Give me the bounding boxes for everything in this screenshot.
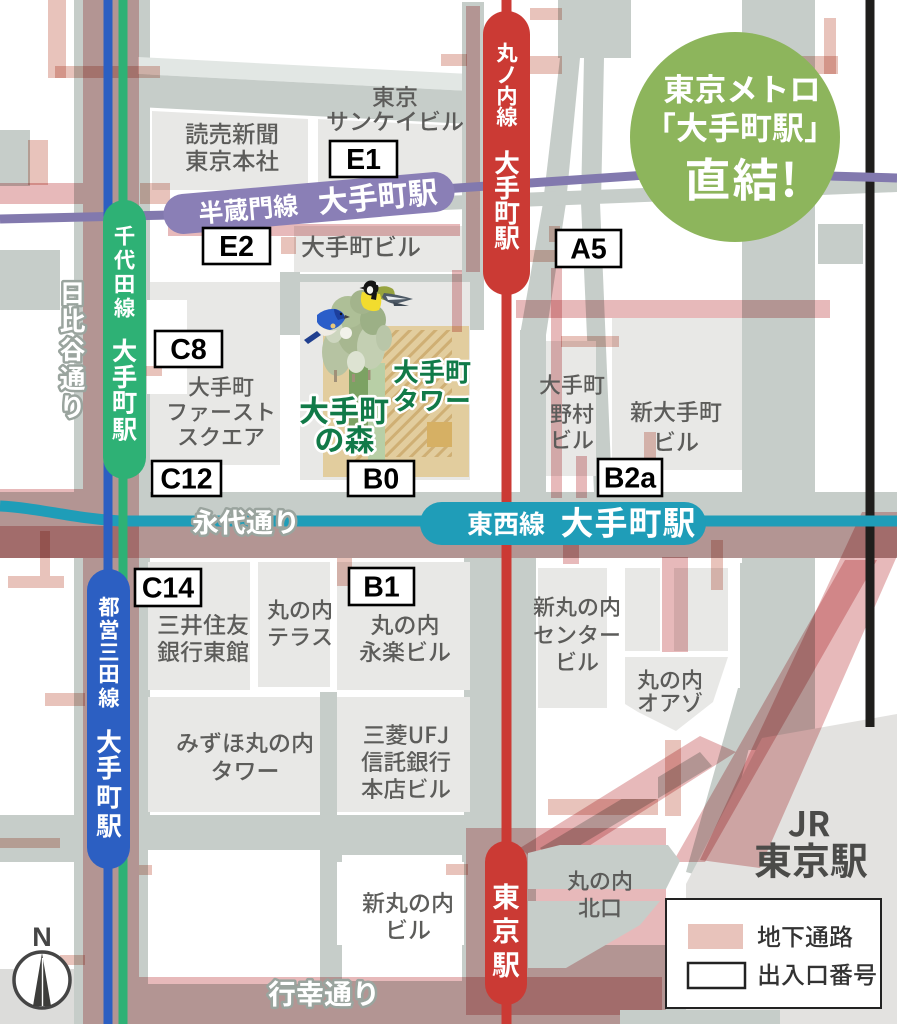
- svg-text:N: N: [32, 922, 52, 952]
- svg-text:E1: E1: [346, 144, 381, 176]
- svg-text:C8: C8: [170, 334, 206, 366]
- svg-text:E2: E2: [219, 231, 254, 263]
- svg-text:B2a: B2a: [604, 463, 657, 495]
- svg-text:C12: C12: [160, 464, 212, 496]
- svg-text:C14: C14: [142, 573, 194, 605]
- svg-text:B0: B0: [363, 464, 399, 496]
- svg-text:B1: B1: [363, 572, 400, 604]
- svg-text:A5: A5: [570, 234, 607, 266]
